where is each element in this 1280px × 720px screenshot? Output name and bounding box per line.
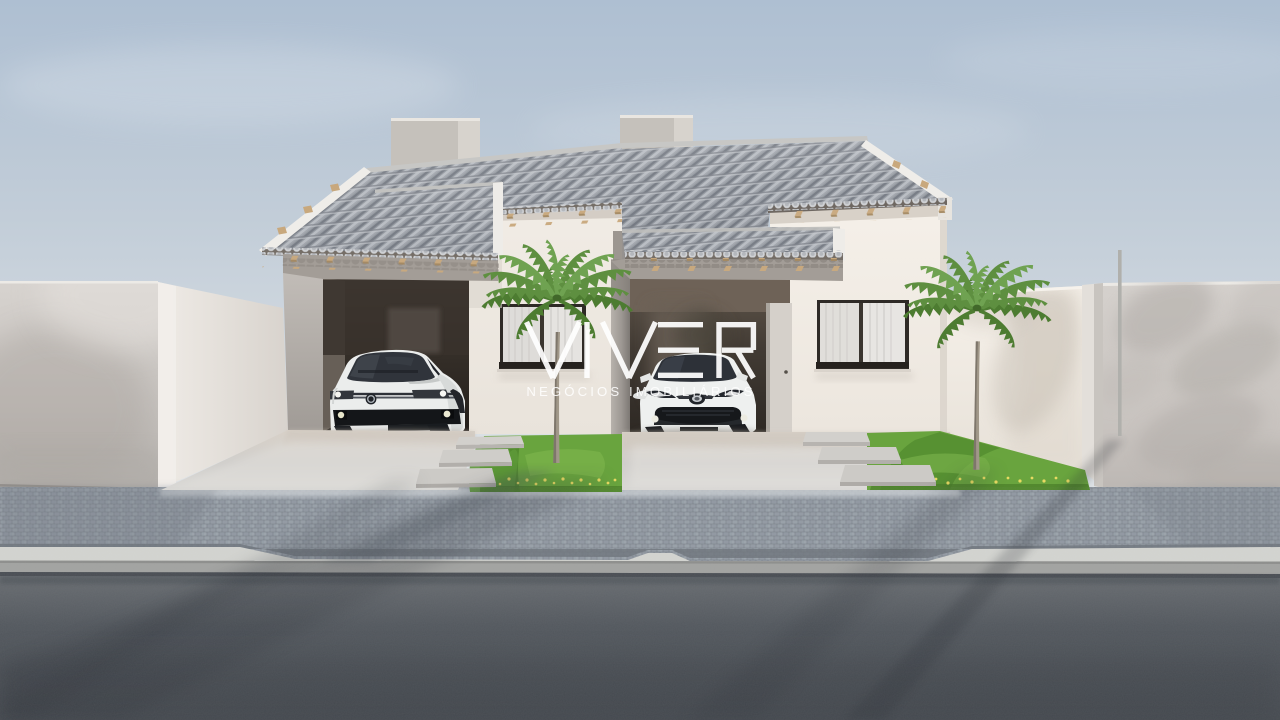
svg-text:NEGÓCIOS IMOBILIÁRIOS: NEGÓCIOS IMOBILIÁRIOS <box>526 384 755 399</box>
